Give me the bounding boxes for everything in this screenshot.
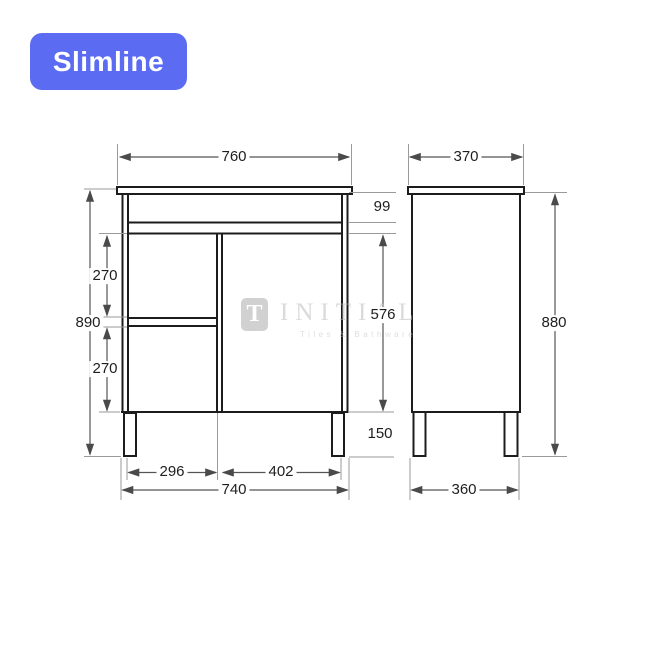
dim-side-cabinet-height: 880 — [538, 315, 569, 331]
dim-front-upper-drawer-height: 270 — [89, 268, 120, 284]
dim-front-carcass-width: 740 — [218, 482, 249, 498]
vanity-dimension-drawing: Slimline — [0, 0, 645, 645]
dim-side-overall-depth: 370 — [450, 149, 481, 165]
dim-front-lower-drawer-height: 270 — [89, 361, 120, 377]
dim-front-overall-width: 760 — [218, 149, 249, 165]
dim-front-drawer-bank-width: 296 — [156, 464, 187, 480]
dim-front-overall-height: 890 — [72, 315, 103, 331]
front-view-cabinet — [117, 187, 352, 456]
dim-side-base-depth: 360 — [448, 482, 479, 498]
dimension-lines — [90, 157, 555, 490]
dim-front-door-height: 576 — [367, 307, 398, 323]
dim-front-door-width: 402 — [265, 464, 296, 480]
dim-front-leg-height: 150 — [364, 426, 395, 442]
side-view-cabinet — [408, 187, 524, 456]
dim-front-top-rail-height: 99 — [371, 199, 394, 215]
